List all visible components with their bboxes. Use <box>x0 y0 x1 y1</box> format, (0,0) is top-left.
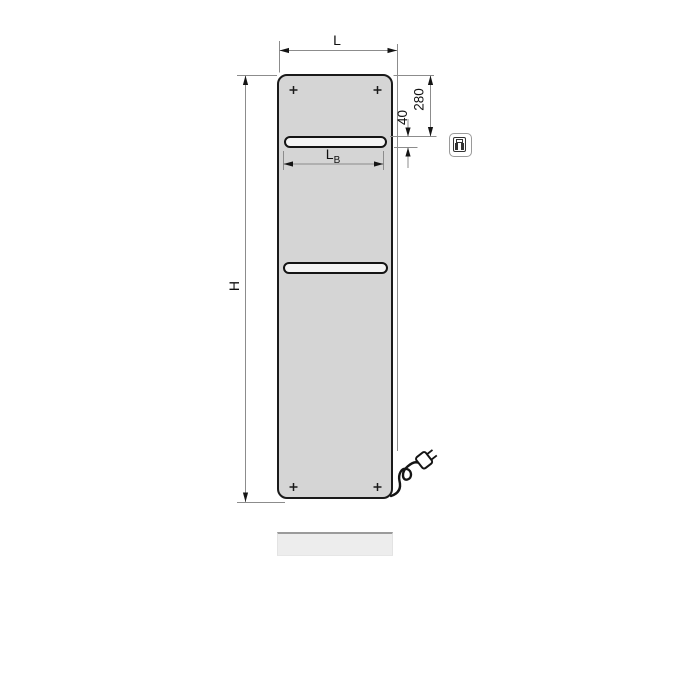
dim-H-label: H <box>226 272 242 300</box>
dim-LB-subscript: B <box>334 155 341 166</box>
control-unit-icon <box>449 133 472 157</box>
power-cable <box>391 462 418 496</box>
technical-drawing-canvas: L H LB 280 40 <box>0 0 700 700</box>
dim-H-line <box>243 76 248 503</box>
control-unit-body <box>453 137 466 153</box>
dim-LB-label: LB <box>319 146 347 163</box>
dim-40-label: 40 <box>395 102 410 133</box>
dim-L-line <box>280 48 398 53</box>
power-plug-icon <box>415 447 439 470</box>
dim-LB-main: L <box>326 146 334 162</box>
towel-slot-lower <box>283 262 388 274</box>
dim-280-line <box>428 76 433 137</box>
control-unit-bar-left <box>455 143 457 150</box>
dim-280-label: 280 <box>412 80 427 120</box>
floor-reflection <box>277 532 393 556</box>
control-unit-bar-right <box>461 143 463 150</box>
dim-L-label: L <box>327 32 347 48</box>
